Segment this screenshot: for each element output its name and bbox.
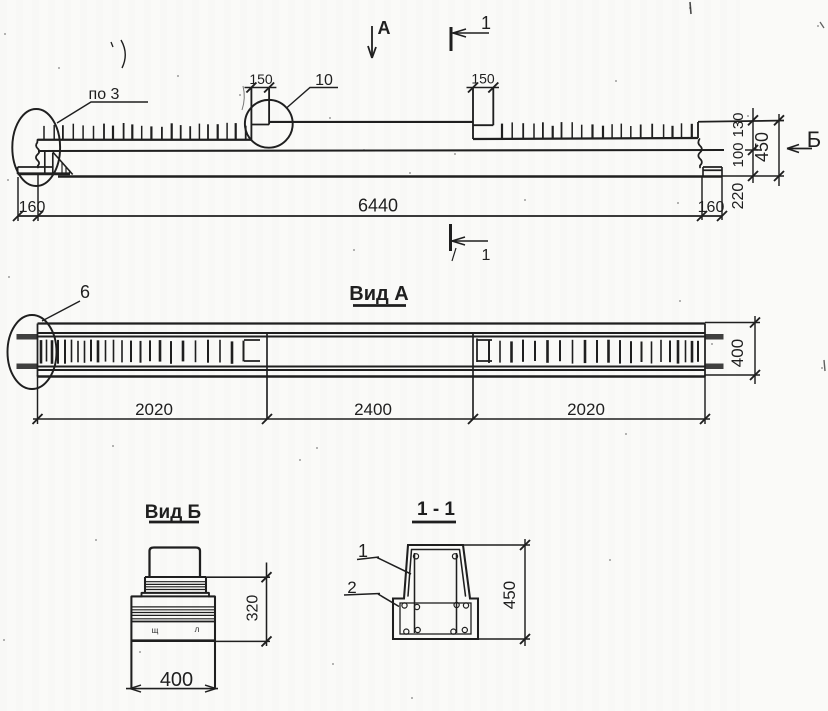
svg-text:л: л	[195, 625, 200, 634]
svg-text:10: 10	[315, 72, 333, 89]
svg-text:А: А	[378, 18, 391, 38]
svg-text:100: 100	[730, 142, 747, 167]
svg-text:320: 320	[245, 595, 262, 622]
svg-text:1 - 1: 1 - 1	[417, 499, 455, 520]
svg-text:2400: 2400	[354, 400, 392, 419]
svg-text:2020: 2020	[567, 400, 605, 419]
svg-text:220: 220	[730, 183, 747, 210]
svg-text:150: 150	[471, 71, 495, 87]
svg-text:Вид Б: Вид Б	[145, 502, 201, 523]
svg-text:6: 6	[80, 282, 90, 302]
svg-text:по 3: по 3	[89, 86, 120, 103]
svg-text:450: 450	[752, 132, 772, 162]
svg-text:Б: Б	[807, 127, 821, 152]
svg-text:Вид А: Вид А	[349, 283, 408, 305]
svg-text:400: 400	[728, 339, 747, 367]
svg-text:160: 160	[19, 199, 46, 216]
svg-text:1: 1	[481, 13, 491, 33]
svg-text:130: 130	[730, 112, 747, 137]
svg-text:1: 1	[482, 247, 491, 264]
svg-text:160: 160	[698, 199, 725, 216]
svg-text:150: 150	[249, 71, 273, 87]
svg-text:400: 400	[160, 669, 193, 691]
svg-text:450: 450	[500, 581, 519, 609]
svg-text:6440: 6440	[358, 196, 398, 216]
svg-text:2020: 2020	[135, 400, 173, 419]
svg-text:щ: щ	[152, 626, 159, 635]
